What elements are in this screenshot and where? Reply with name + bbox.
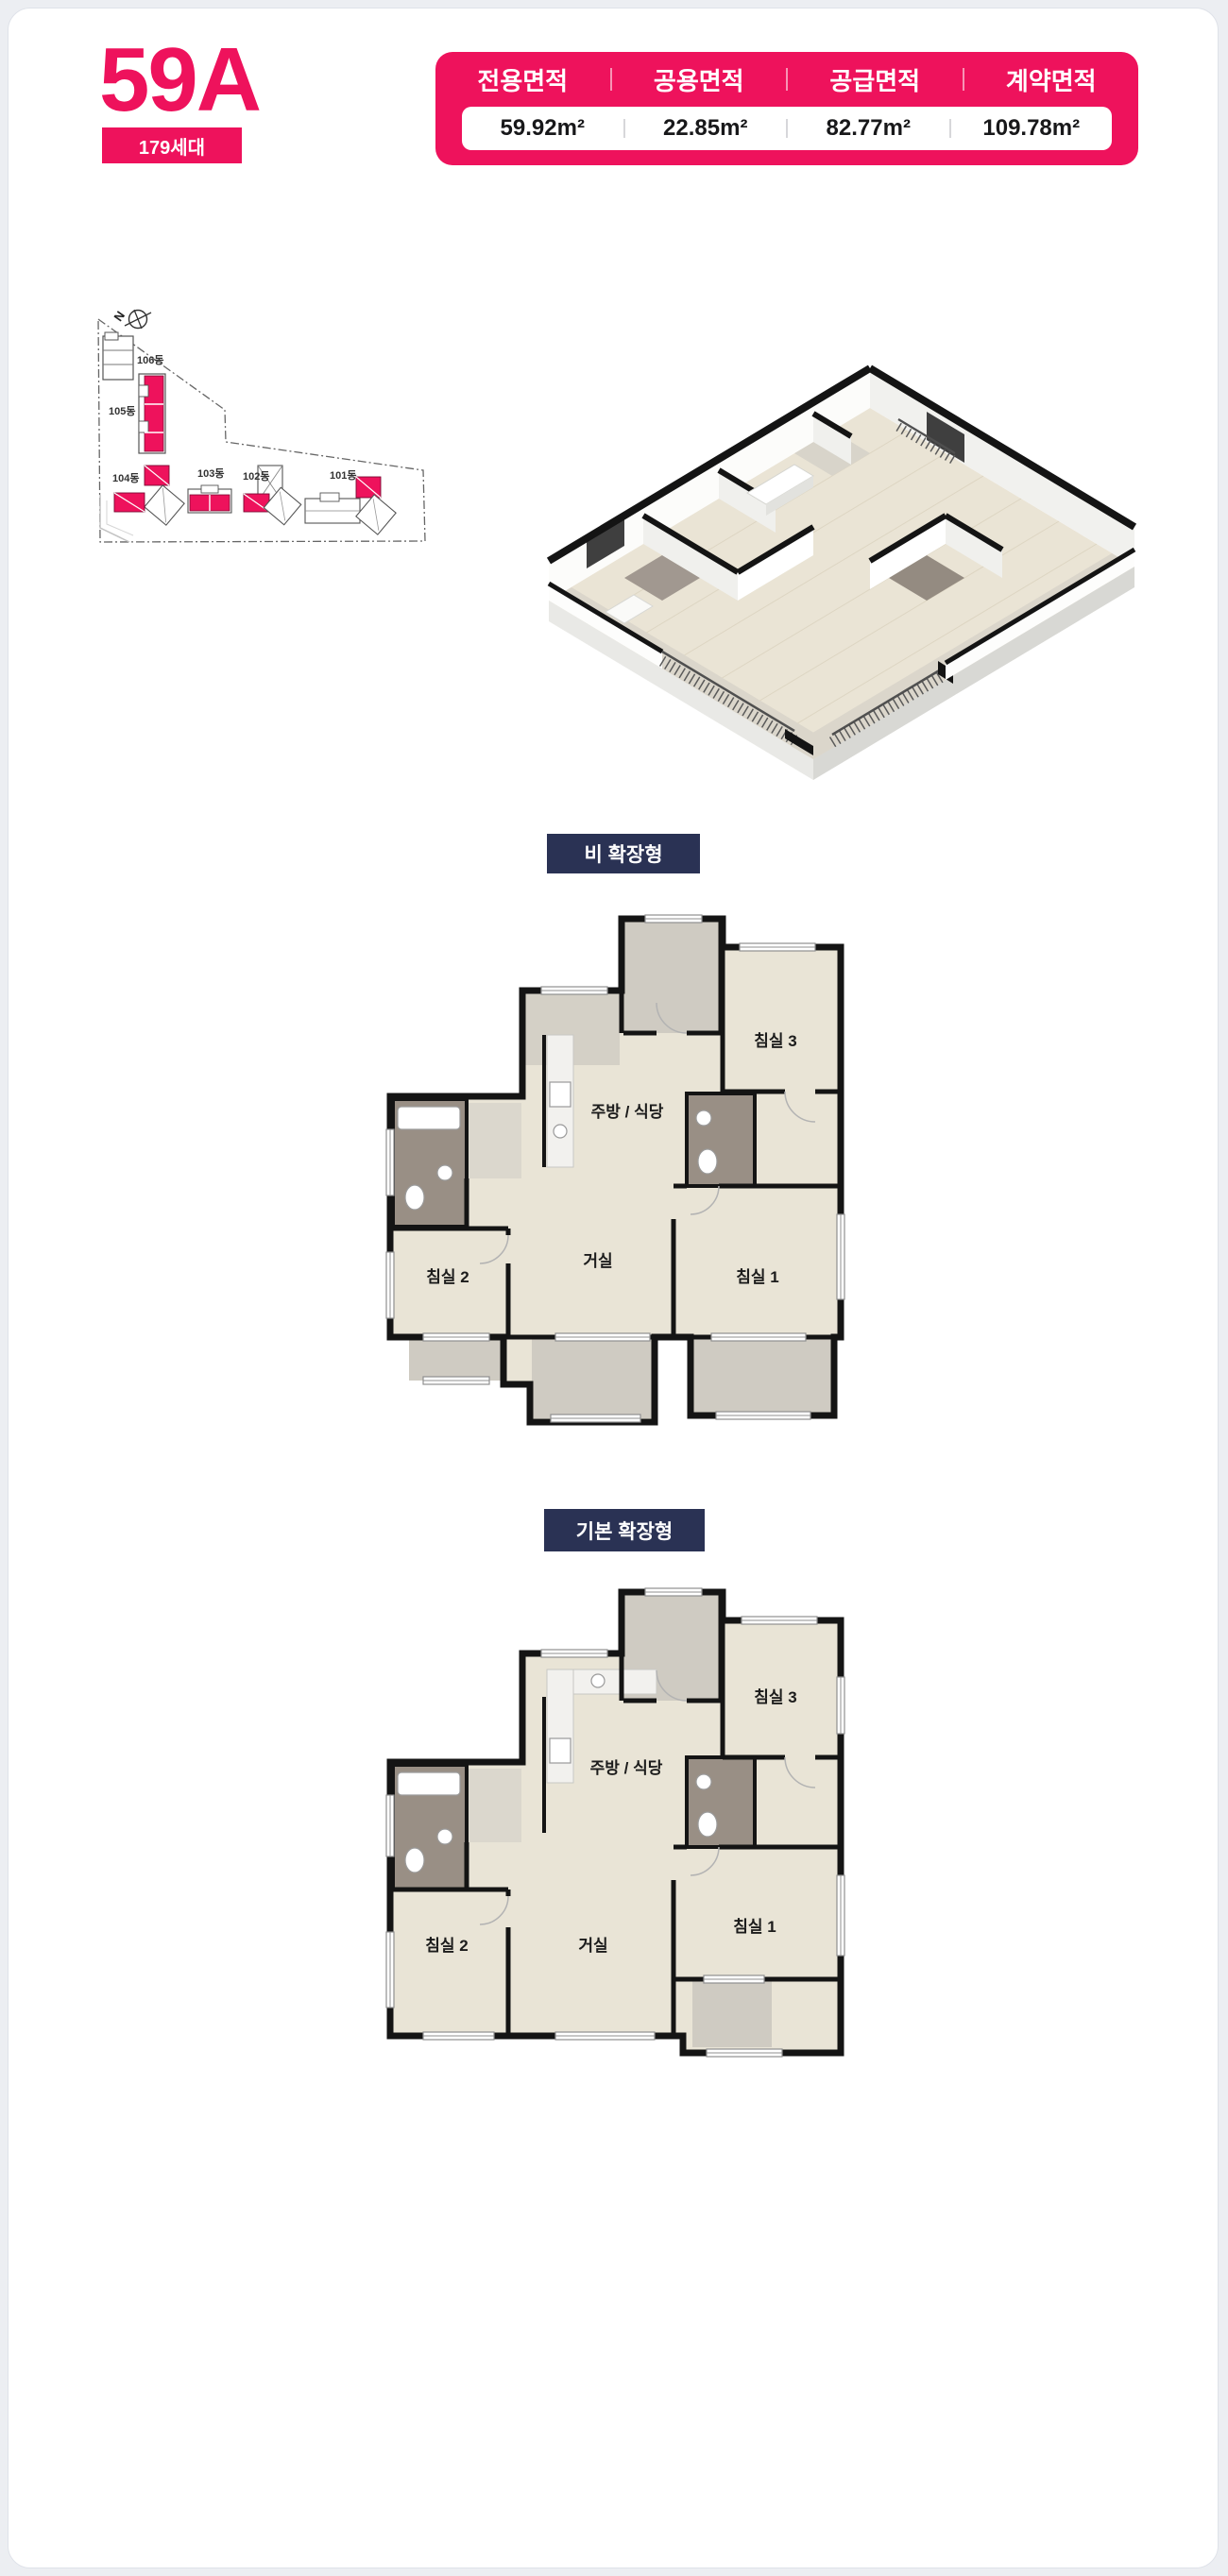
bedroom1-label: 침실 1 xyxy=(736,1267,778,1286)
stove xyxy=(550,1738,571,1763)
bedroom3-label: 침실 3 xyxy=(754,1031,796,1050)
toilet xyxy=(405,1848,424,1873)
variant-label-expanded: 기본 확장형 xyxy=(544,1509,705,1551)
unit-type-title: 59A xyxy=(99,35,260,126)
area-table-values: 59.92m² 22.85m² 82.77m² 109.78m² xyxy=(462,107,1112,150)
household-count-badge: 179세대 xyxy=(102,127,242,163)
balcony xyxy=(692,1979,772,2047)
bedroom1-label: 침실 1 xyxy=(733,1917,776,1936)
bedroom3-label: 침실 3 xyxy=(754,1687,796,1706)
balcony xyxy=(692,1339,832,1413)
building-106-label: 106동 xyxy=(137,354,163,366)
bathtub xyxy=(398,1107,460,1129)
north-label: N xyxy=(111,309,128,324)
sink xyxy=(696,1110,711,1126)
site-plan-map: N 106동 105동 104동 xyxy=(58,280,445,553)
kitchen-dining-label: 주방 / 식당 xyxy=(591,1103,664,1121)
toilet xyxy=(698,1149,717,1174)
building-106: 106동 xyxy=(103,332,163,380)
balcony xyxy=(409,1337,502,1381)
building-103-label: 103동 xyxy=(197,467,224,480)
area-col-label: 전용면적 xyxy=(435,62,610,97)
toilet xyxy=(698,1812,717,1837)
area-col-label: 공급면적 xyxy=(788,62,963,97)
area-col-value: 59.92m² xyxy=(462,115,623,142)
building-104-label: 104동 xyxy=(112,472,139,484)
area-col-label: 계약면적 xyxy=(964,62,1139,97)
kitchen-dining-label: 주방 / 식당 xyxy=(590,1759,663,1777)
bathroom-2 xyxy=(687,1093,755,1186)
bedroom2-label: 침실 2 xyxy=(426,1267,469,1286)
kitchen-sink xyxy=(554,1125,567,1138)
north-compass-icon: N xyxy=(111,309,151,329)
unit-type-card: 59A 179세대 전용면적 공용면적 공급면적 계약면적 59.92m² 22… xyxy=(8,8,1219,2568)
bathtub xyxy=(398,1772,460,1795)
building-103: 103동 xyxy=(188,467,231,513)
building-101-label: 101동 xyxy=(330,469,356,482)
floorplan-expanded: 침실 3 주방 / 식당 침실 2 거실 침실 1 xyxy=(371,1564,862,2130)
building-105: 105동 xyxy=(109,374,165,453)
stove xyxy=(550,1082,571,1107)
sink xyxy=(437,1165,452,1180)
sink xyxy=(696,1774,711,1789)
area-col-label: 공용면적 xyxy=(612,62,787,97)
area-col-value: 109.78m² xyxy=(951,115,1113,142)
kitchen-sink xyxy=(591,1674,605,1687)
toilet xyxy=(405,1185,424,1210)
bathroom-2 xyxy=(687,1757,755,1847)
balcony xyxy=(532,1339,653,1418)
dressroom xyxy=(467,1103,521,1178)
area-table-header: 전용면적 공용면적 공급면적 계약면적 xyxy=(435,52,1138,107)
building-102-label: 102동 xyxy=(243,470,269,483)
area-col-value: 22.85m² xyxy=(625,115,787,142)
isometric-floorplan xyxy=(497,270,1149,808)
sink xyxy=(437,1829,452,1844)
building-102: 102동 xyxy=(243,466,301,525)
building-105-label: 105동 xyxy=(109,405,135,417)
variant-label-non-expanded: 비 확장형 xyxy=(547,834,700,873)
building-101: 101동 xyxy=(305,469,396,534)
living-room-label: 거실 xyxy=(583,1252,612,1270)
entry-porch xyxy=(623,922,720,1033)
bedroom2-label: 침실 2 xyxy=(425,1936,468,1955)
area-table: 전용면적 공용면적 공급면적 계약면적 59.92m² 22.85m² 82.7… xyxy=(435,52,1138,165)
building-104: 104동 xyxy=(112,466,184,525)
area-col-value: 82.77m² xyxy=(788,115,949,142)
dressroom xyxy=(467,1769,521,1842)
living-room-label: 거실 xyxy=(578,1937,607,1955)
kitchen-counter xyxy=(547,1669,573,1783)
floorplan-non-expanded: 침실 3 주방 / 식당 침실 2 거실 침실 1 xyxy=(371,893,862,1436)
